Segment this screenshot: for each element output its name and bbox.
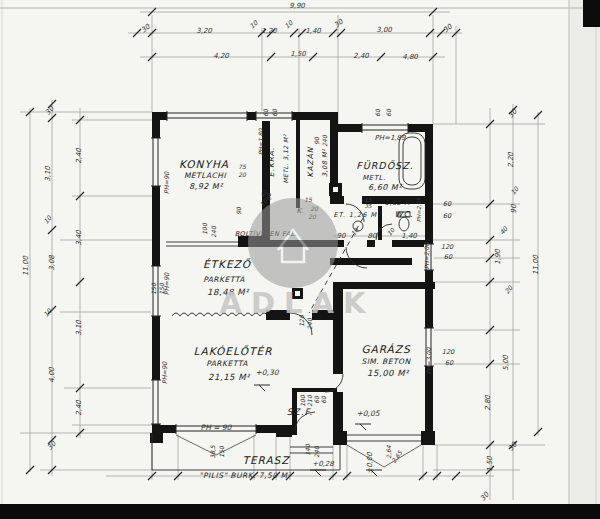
room-material-konyha: METLACHI (184, 172, 226, 180)
dim-openings-label: 35 (365, 204, 372, 210)
dim-top-label: 3,00 (376, 27, 392, 34)
dim-bottom-label: 240 (314, 446, 320, 457)
parapet-height-label: PH=1,80 (258, 129, 264, 156)
dim-openings-label: 60 (444, 254, 452, 261)
watermark-house-icon (248, 198, 338, 288)
parapet-height-label: PH=2,25 (417, 198, 423, 222)
watermark-text: ADLAK (220, 289, 375, 318)
dim-bottom-label: 140 (305, 444, 311, 455)
dim-bottom-label: 2,65 (391, 450, 404, 464)
room-area-kazan: 3,08 M² (322, 149, 329, 177)
dim-left-label: 11,00 (23, 256, 30, 276)
parapet-height-label: PH=90 (162, 362, 169, 385)
dim-openings-label: 10 (350, 227, 360, 237)
room-label-eleskamra: É.KRA. (268, 147, 276, 177)
dim-top-label: 10 (284, 20, 295, 30)
parapet-height-label: PH = 90 (201, 424, 232, 432)
room-label-lakoeloter: LAKÓELŐTÉR (194, 346, 273, 357)
room-material-garazs: SIM. BETON (361, 358, 410, 366)
dim-right-label: 20 (504, 285, 514, 296)
dim-left-label: 2,40 (76, 400, 83, 416)
dim-right-label: 30 (507, 441, 518, 452)
level-mark-label: +0,05 (357, 410, 380, 418)
dim-top-label: 10 (249, 20, 260, 30)
room-label-furdoszoba: FÜRDŐSZ. (356, 161, 413, 171)
room-material-eleskamra: METL. 3,12 M² (283, 134, 289, 183)
dim-top-label: 1,40 (305, 28, 321, 35)
dim-right-label: 1,50 (487, 456, 494, 472)
room-label-konyha: KONYHA (179, 159, 229, 170)
dim-bottom-label: 150 (219, 446, 225, 457)
dim-top-label: 4,80 (402, 54, 418, 61)
dim-right-label: 2,80 (485, 395, 492, 411)
dim-openings-label: 60 (386, 109, 392, 117)
dim-openings-label: 60 (443, 201, 451, 208)
dim-right-label: 10 (510, 186, 520, 197)
dim-openings-label: 240 (307, 318, 313, 329)
level-mark-label: ±0,00 (367, 452, 374, 473)
dim-openings-label: 240 (322, 135, 328, 146)
parapet-height-label: PH=90 (164, 273, 171, 296)
floor-plan-page: KONYHAMETLACHI8,92 M²É.KRA.METL. 3,12 M²… (0, 0, 600, 519)
dim-left-label: 30 (46, 440, 57, 451)
dim-left-label: 10 (43, 308, 53, 319)
dim-openings-label: 10 (386, 227, 396, 237)
dim-openings-label: 20 (238, 172, 246, 178)
room-label-eloter: ET. 1,26 M² (333, 212, 380, 219)
dim-top-label: 9,90 (289, 3, 305, 10)
dim-left-label: 3,10 (45, 166, 52, 182)
dim-bottom-label: 38,5 (210, 445, 216, 458)
dim-openings-label: 60 (321, 396, 327, 404)
dim-left-label: 10 (43, 215, 53, 226)
room-area-garazs: 15,00 M² (367, 369, 409, 378)
room-label-terasz: TERASZ (243, 455, 290, 466)
dim-openings-label: 150 (151, 283, 157, 294)
parapet-height-label: PH=1,89 (375, 135, 406, 142)
room-label-wc: WC. (394, 211, 413, 219)
dim-top-label: 4,20 (213, 53, 229, 60)
room-label-kazan: KAZÁN (307, 147, 315, 178)
dim-openings-label: 100 (202, 223, 208, 234)
dim-top-label: 30 (442, 23, 453, 34)
dim-openings-label: 240 (211, 226, 217, 237)
room-material-terasz: "PILIS" BURK. 7,50 M² (199, 472, 291, 480)
dim-top-label: 30 (140, 23, 151, 34)
dim-right-label: 5,00 (503, 355, 510, 371)
dim-right-label: 40 (499, 226, 509, 237)
dim-top-label: 1,50 (290, 51, 306, 58)
dim-openings-label: 120 (442, 349, 454, 356)
dim-right-label: 90 (511, 205, 518, 214)
dim-openings-label: 60 (263, 109, 269, 117)
level-mark-label: +0,28 (312, 461, 333, 468)
dim-right-label: 30 (479, 491, 490, 502)
parapet-height-label: PH=2,00 (424, 243, 430, 270)
dim-openings-label: 90 (314, 137, 320, 145)
dim-right-label: 2,20 (508, 152, 515, 168)
dim-openings-label: 90 (236, 207, 242, 215)
dim-openings-label: 80 (368, 233, 377, 240)
dim-openings-label: 1,40 (401, 233, 417, 240)
dim-openings-label: 60 (375, 109, 381, 117)
dim-left-label: 3,08 (49, 255, 56, 271)
parapet-height-label: PH=90 (164, 172, 171, 195)
room-material-lakoeloter: PARKETTA (206, 360, 248, 368)
room-area-furdoszoba: 6,60 M² (368, 184, 402, 192)
dim-top-label: 30 (333, 18, 344, 29)
dim-openings-label: 60 (443, 213, 451, 220)
room-material-furdoszoba: METL. (362, 175, 385, 182)
room-label-etkezo: ÉTKEZŐ (203, 259, 251, 270)
level-mark-label: +0,30 (256, 369, 279, 377)
dim-openings-label: 60 (445, 360, 453, 367)
dim-left-label: 30 (44, 105, 55, 116)
dim-openings-label: 60 (272, 109, 278, 117)
dim-right-label: 1,90 (495, 249, 502, 265)
dim-openings-label: 75 (238, 164, 246, 170)
dim-left-label: 3,10 (76, 320, 83, 336)
dim-top-label: 3,20 (196, 28, 212, 35)
room-label-szelfogo: SZ.F. (287, 408, 313, 417)
dim-top-label: 2,40 (353, 53, 369, 60)
room-area-wc: 1,62 M² (385, 200, 413, 207)
room-area-lakoeloter: 21,15 M² (208, 373, 250, 382)
watermark-circle (248, 198, 338, 288)
dim-right-label: 11,00 (533, 255, 540, 275)
room-material-etkezo: PARKETTA (203, 276, 245, 284)
parapet-height-label: PH=3,00 (426, 348, 432, 375)
dim-left-label: 4,00 (49, 367, 56, 383)
dim-top-label: 1,20 (261, 28, 277, 35)
room-area-konyha: 8,92 M² (189, 183, 223, 191)
room-label-garazs: GARÁZS (361, 344, 410, 355)
dim-right-label: 30 (507, 108, 518, 119)
dim-left-label: 2,40 (76, 148, 83, 164)
dim-left-label: 3,40 (76, 230, 83, 246)
dim-openings-label: 120 (441, 244, 453, 251)
